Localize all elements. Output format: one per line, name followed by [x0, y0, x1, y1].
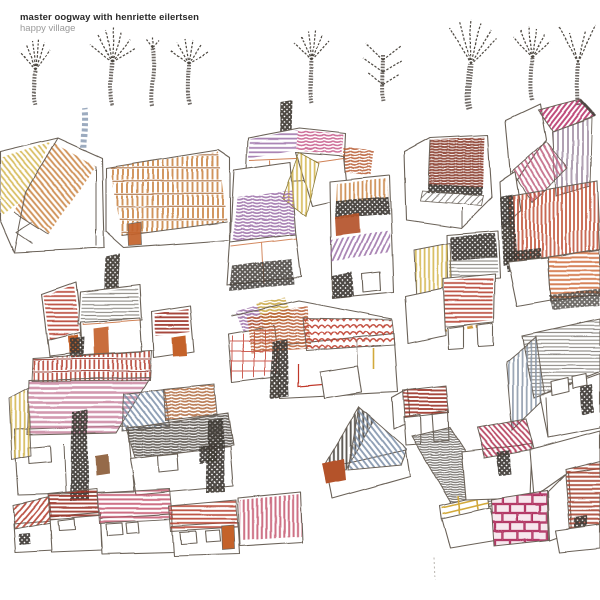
tree-sketch — [363, 44, 403, 100]
tree-trunk — [270, 340, 289, 398]
tree-trunk — [206, 418, 225, 493]
album-cover: master oogway with henriette eilertsen h… — [0, 0, 600, 600]
tree-sketch — [514, 26, 550, 100]
door — [172, 336, 187, 357]
house-yellow-orange-roof — [0, 138, 104, 252]
tree-trunk — [70, 410, 89, 501]
house-tan-striped-roof — [106, 150, 230, 248]
door — [95, 454, 109, 476]
house-striped-stack — [405, 231, 500, 349]
small-dash-mark — [434, 558, 435, 581]
tree-sketch — [450, 20, 497, 108]
bottom-left-row — [13, 489, 302, 556]
tree-sketch — [560, 26, 596, 105]
village-center-tower — [227, 100, 394, 298]
door — [128, 222, 142, 246]
tree-sketch — [90, 28, 136, 105]
tree-sketch — [170, 39, 208, 104]
long-house-center — [228, 298, 398, 398]
tree-sketch — [20, 39, 50, 104]
house-maroon-roof — [404, 135, 492, 228]
bare-trees-row — [20, 20, 596, 108]
village-drawing — [0, 0, 600, 600]
village-far-right-cluster — [500, 99, 600, 310]
big-house-bottom-left — [9, 336, 233, 501]
door — [335, 214, 360, 236]
tree-sketch — [147, 38, 159, 105]
brick-wall — [491, 491, 549, 546]
door — [222, 525, 235, 550]
tree-sketch — [294, 30, 329, 103]
door — [93, 326, 109, 356]
houses-mid-left — [42, 254, 194, 358]
